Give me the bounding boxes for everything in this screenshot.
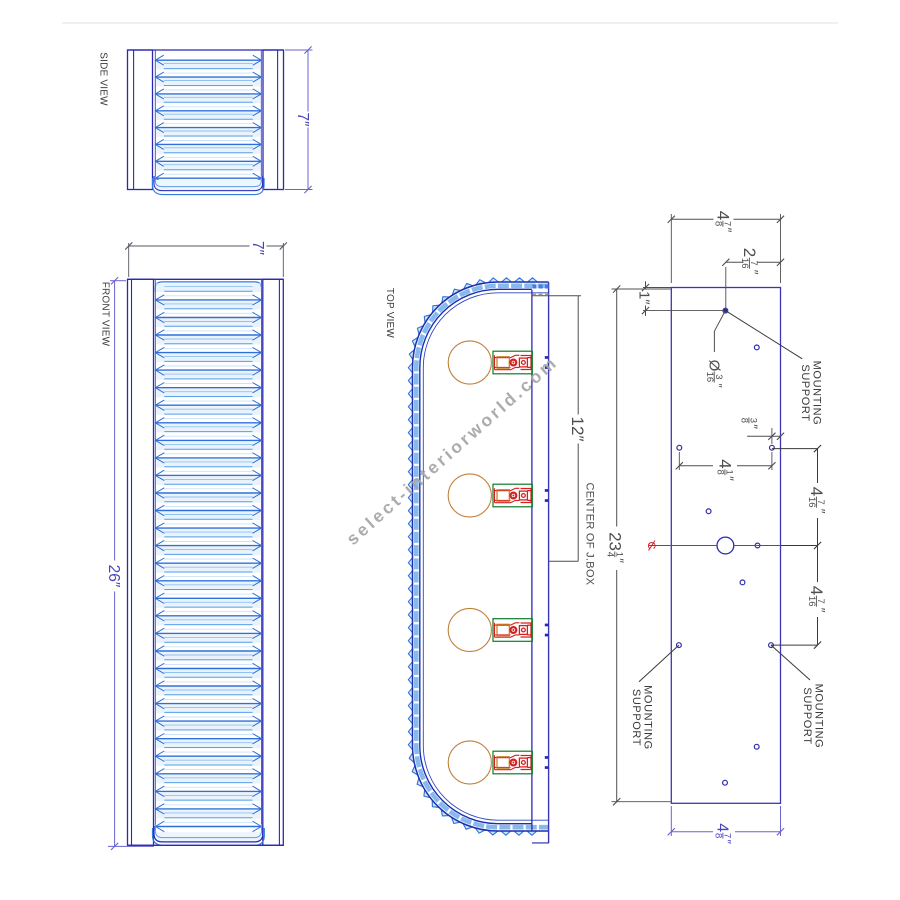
svg-text:4: 4 [714, 823, 731, 832]
svg-text:1″: 1″ [636, 291, 653, 305]
svg-text:″: ″ [813, 608, 828, 613]
svg-text:16: 16 [704, 372, 715, 383]
svg-text:CENTER OF J.BOX: CENTER OF J.BOX [583, 483, 595, 586]
svg-text:16: 16 [806, 596, 817, 607]
svg-text:″: ″ [813, 509, 828, 514]
svg-text:″: ″ [746, 270, 761, 275]
svg-text:4: 4 [713, 211, 732, 220]
svg-text:Ø: Ø [705, 360, 722, 372]
svg-text:4: 4 [605, 552, 616, 557]
svg-text:″: ″ [710, 384, 724, 389]
svg-text:MOUNTING: MOUNTING [641, 685, 653, 750]
svg-text:″: ″ [721, 476, 736, 481]
svg-text:8: 8 [739, 418, 750, 423]
svg-text:″: ″ [719, 840, 734, 845]
svg-text:″: ″ [745, 424, 760, 429]
svg-text:SUPPORT: SUPPORT [630, 689, 642, 746]
svg-text:″: ″ [611, 558, 626, 563]
svg-text:4: 4 [715, 459, 734, 468]
svg-text:SUPPORT: SUPPORT [799, 364, 811, 421]
svg-text:23: 23 [605, 532, 624, 551]
svg-text:″: ″ [719, 228, 734, 233]
svg-text:TOP VIEW: TOP VIEW [384, 288, 395, 338]
svg-text:12″: 12″ [568, 417, 587, 442]
svg-text:26″: 26″ [105, 565, 122, 588]
svg-text:2: 2 [740, 248, 759, 257]
svg-text:7″: 7″ [294, 112, 311, 127]
svg-text:C: C [645, 542, 657, 550]
svg-text:SIDE VIEW: SIDE VIEW [98, 52, 109, 106]
svg-text:8: 8 [713, 221, 724, 226]
svg-text:7″: 7″ [249, 241, 266, 256]
svg-text:MOUNTING: MOUNTING [811, 361, 823, 426]
svg-text:FRONT VIEW: FRONT VIEW [99, 282, 110, 347]
svg-text:4: 4 [807, 487, 826, 496]
svg-text:select-interiorworld.com: select-interiorworld.com [342, 352, 561, 549]
svg-text:4: 4 [807, 586, 826, 595]
svg-text:16: 16 [806, 497, 817, 508]
svg-text:16: 16 [739, 258, 750, 269]
svg-text:8: 8 [715, 470, 726, 475]
svg-text:SUPPORT: SUPPORT [801, 687, 813, 744]
svg-text:8: 8 [713, 833, 724, 838]
svg-text:MOUNTING: MOUNTING [812, 684, 824, 749]
